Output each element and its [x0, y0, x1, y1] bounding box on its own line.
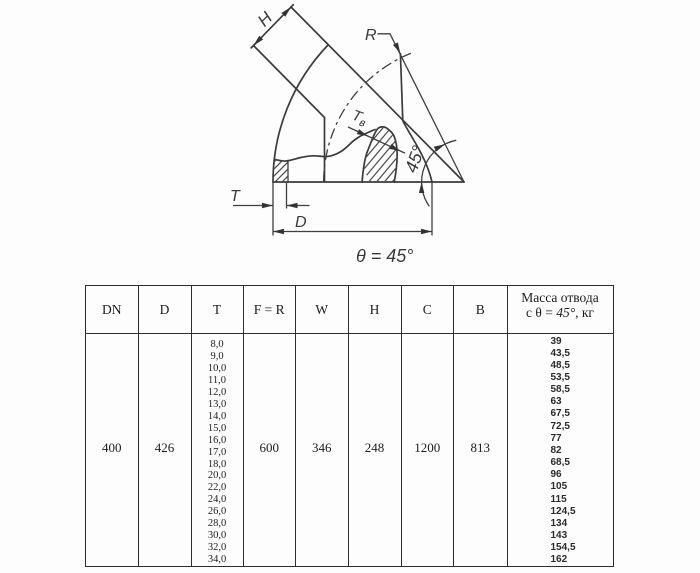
- svg-text:D: D: [295, 214, 307, 231]
- svg-text:θ = 45°: θ = 45°: [356, 246, 414, 266]
- svg-text:T: T: [230, 188, 241, 205]
- svg-text:Tв: Tв: [349, 107, 370, 130]
- svg-text:H: H: [254, 8, 277, 31]
- svg-text:R: R: [365, 27, 377, 44]
- svg-text:45°: 45°: [401, 143, 429, 175]
